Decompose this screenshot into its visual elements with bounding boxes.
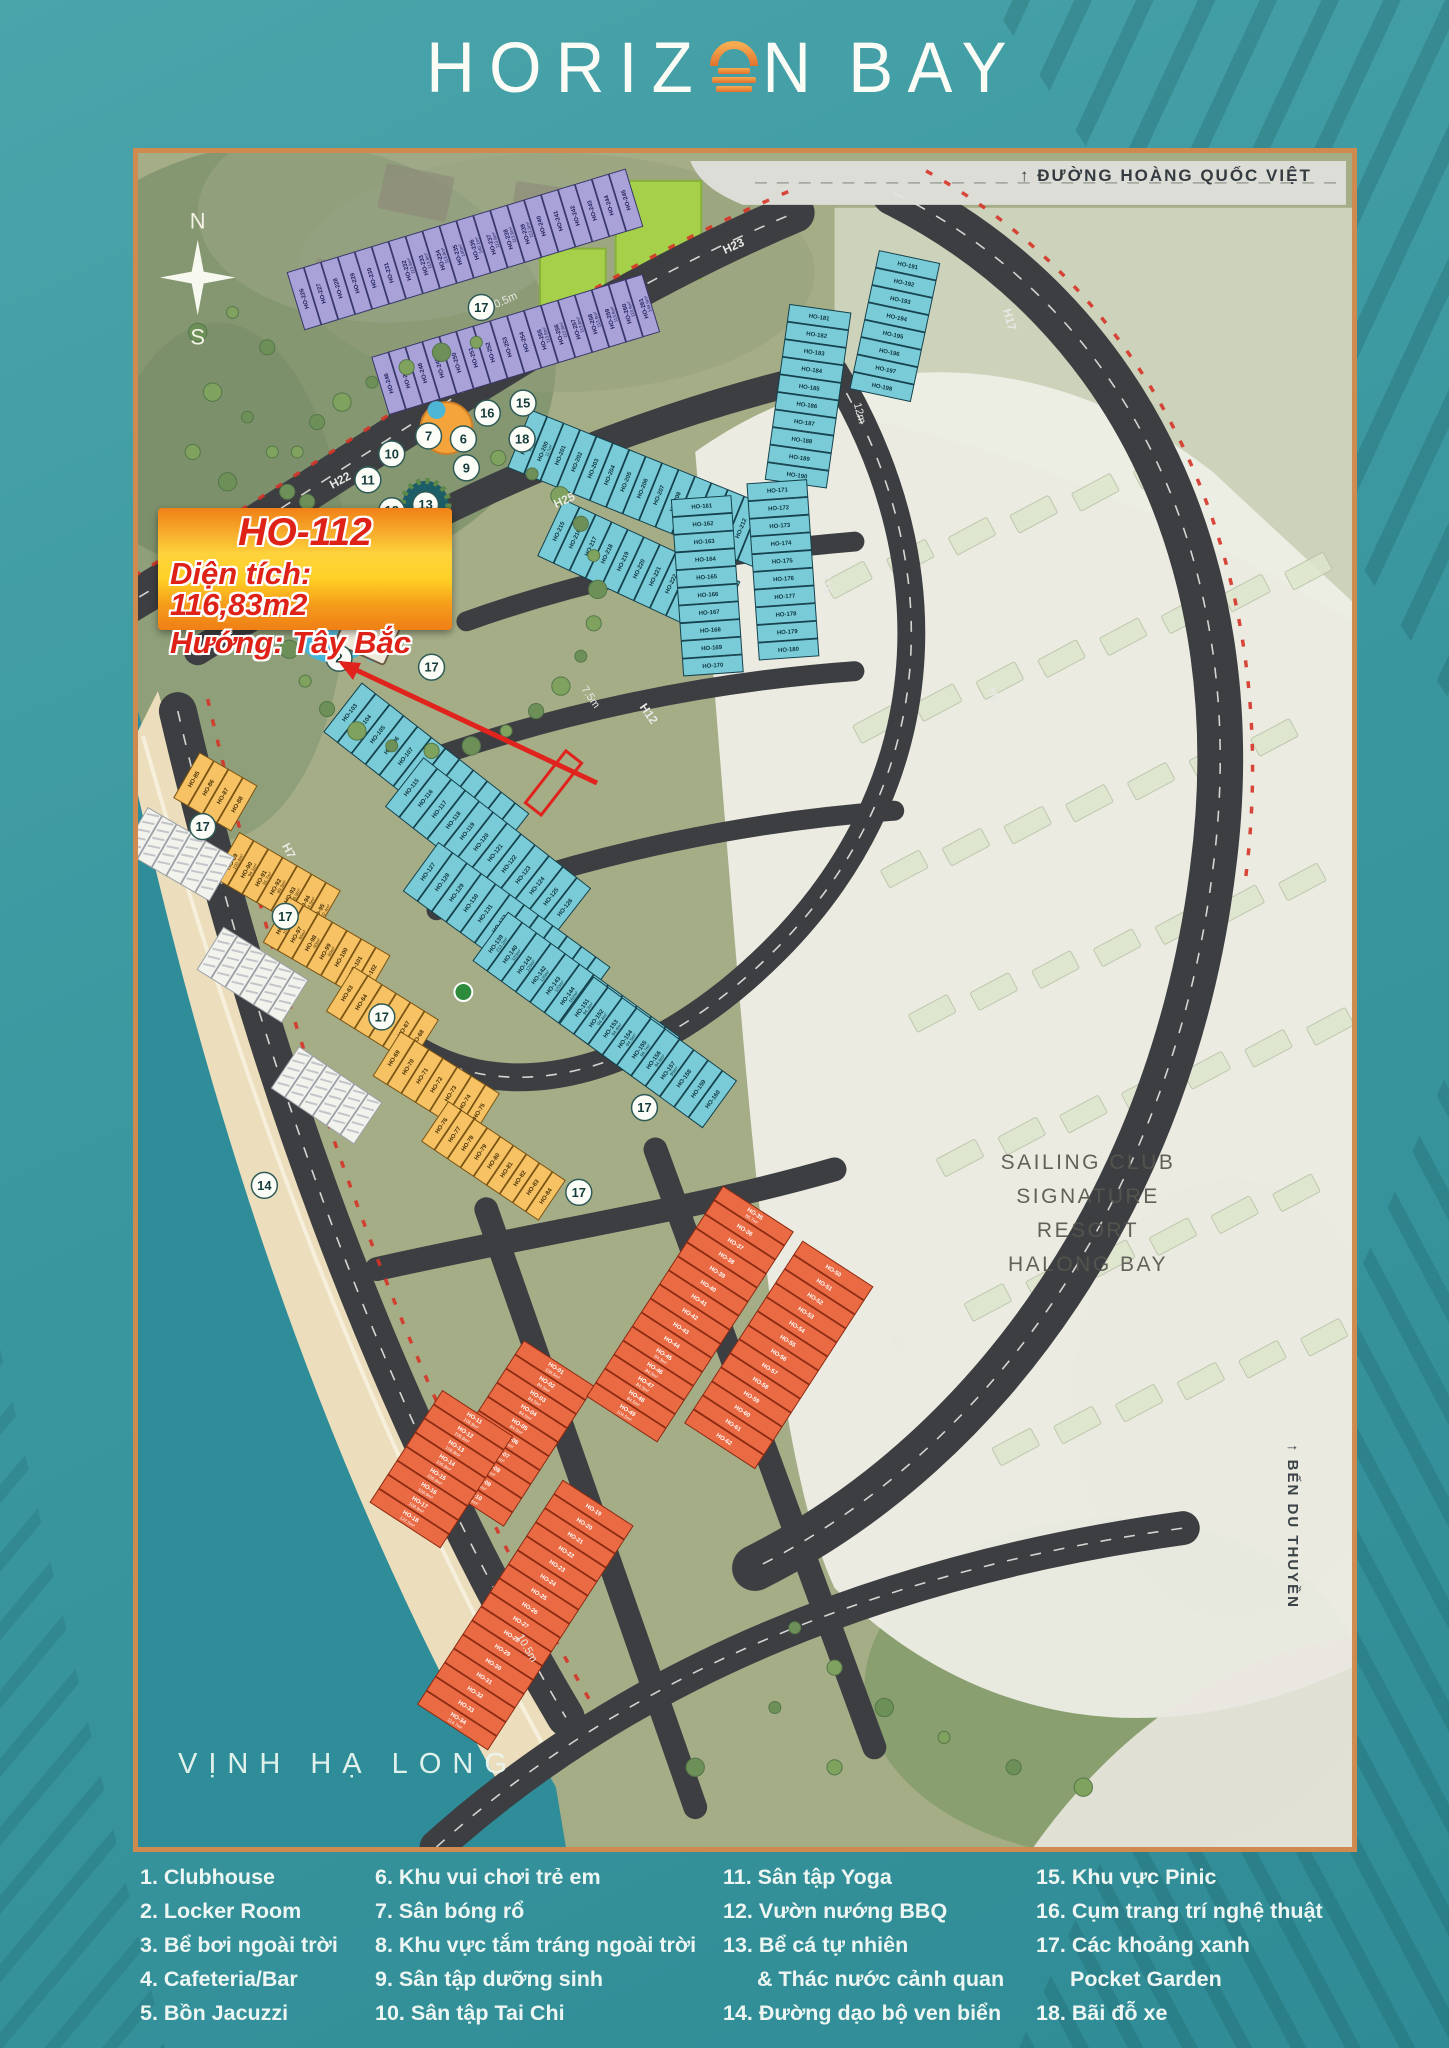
tree-icon bbox=[686, 1758, 704, 1776]
horizon-bay-masterplan-poster: { "logo": {"part1": "HORIZ", "part2": "N… bbox=[0, 0, 1449, 2048]
tree-icon bbox=[203, 383, 221, 401]
callout-direction: Hướng: Tây Bắc bbox=[158, 627, 452, 658]
amenity-marker-number: 17 bbox=[195, 819, 209, 834]
tree-icon bbox=[280, 484, 295, 499]
amenity-marker-number: 16 bbox=[480, 406, 494, 421]
tree-icon bbox=[424, 743, 439, 758]
legend-item: 11. Sân tập Yoga bbox=[723, 1860, 1004, 1894]
legend-column-4: 15. Khu vực Pinic16. Cụm trang trí nghệ … bbox=[1036, 1860, 1323, 2030]
tree-icon bbox=[299, 675, 311, 687]
amenity-marker-number: 14 bbox=[257, 1178, 272, 1193]
legend-item: 2. Locker Room bbox=[140, 1894, 338, 1928]
legend-item: 12. Vườn nướng BBQ bbox=[723, 1894, 1004, 1928]
legend-item: 5. Bồn Jacuzzi bbox=[140, 1996, 338, 2030]
logo-text-bay: BAY bbox=[849, 34, 1022, 102]
tree-icon bbox=[432, 343, 450, 361]
legend-item: 6. Khu vui chơi trẻ em bbox=[375, 1860, 696, 1894]
legend-column-1: 1. Clubhouse2. Locker Room3. Bể bơi ngoà… bbox=[140, 1860, 338, 2030]
legend-column-2: 6. Khu vui chơi trẻ em7. Sân bóng rổ8. K… bbox=[375, 1860, 696, 2030]
compass-north: N bbox=[190, 209, 206, 234]
callout-area: Diện tích: 116,83m2 bbox=[158, 558, 452, 620]
amenity-marker-number: 17 bbox=[637, 1100, 651, 1115]
tree-icon bbox=[588, 550, 600, 562]
amenity-marker-number: 10 bbox=[385, 446, 399, 461]
callout-lot-id: HO-112 bbox=[158, 513, 452, 552]
legend-item: 8. Khu vực tắm tráng ngoài trời bbox=[375, 1928, 696, 1962]
legend-item: 17. Các khoảng xanh bbox=[1036, 1928, 1323, 1962]
legend-item: 16. Cụm trang trí nghệ thuật bbox=[1036, 1894, 1323, 1928]
compass-south: S bbox=[190, 324, 205, 349]
lot-callout: HO-112 Diện tích: 116,83m2 Hướng: Tây Bắ… bbox=[158, 508, 452, 630]
amenity-marker-number: 17 bbox=[572, 1185, 586, 1200]
lot-block-teal_t5a: HO-171HO-172HO-173HO-174HO-175HO-176HO-1… bbox=[747, 480, 819, 660]
legend-item: 18. Bãi đỗ xe bbox=[1036, 1996, 1323, 2030]
tree-icon bbox=[470, 336, 482, 348]
lot-block-teal_t5b: HO-161HO-162HO-163HO-164HO-165HO-166HO-1… bbox=[671, 496, 743, 676]
masterplan-canvas: HO-226HO-227HO-228HO-229HO-230HO-231HO-2… bbox=[138, 153, 1352, 1847]
amenity-marker-number: 17 bbox=[474, 300, 488, 315]
tree-icon bbox=[386, 740, 398, 752]
tree-icon bbox=[573, 516, 588, 531]
amenity-marker-number: 15 bbox=[516, 396, 530, 411]
amenity-marker-number: 17 bbox=[278, 909, 292, 924]
tree-icon bbox=[1006, 1760, 1021, 1775]
amenity-marker-number: 18 bbox=[515, 431, 529, 446]
tree-icon bbox=[320, 701, 335, 716]
legend-item: 7. Sân bóng rổ bbox=[375, 1894, 696, 1928]
tree-icon bbox=[218, 473, 236, 491]
tree-icon bbox=[789, 1622, 801, 1634]
tree-icon bbox=[185, 444, 200, 459]
tree-icon bbox=[528, 703, 543, 718]
tree-icon bbox=[586, 616, 601, 631]
legend-item: 13. Bể cá tự nhiên bbox=[723, 1928, 1004, 1962]
tree-icon bbox=[575, 650, 587, 662]
tree-icon bbox=[769, 1702, 781, 1714]
tree-icon bbox=[500, 725, 512, 737]
tree-icon bbox=[348, 722, 366, 740]
tree-icon bbox=[589, 580, 607, 598]
legend-item: 4. Cafeteria/Bar bbox=[140, 1962, 338, 1996]
logo-text-mid: N bbox=[762, 34, 825, 102]
amenity-marker-number: 17 bbox=[375, 1009, 389, 1024]
tree-icon bbox=[399, 360, 414, 375]
logo-text-left: HORIZ bbox=[427, 34, 708, 102]
legend-item: 3. Bể bơi ngoài trời bbox=[140, 1928, 338, 1962]
tree-icon bbox=[291, 446, 303, 458]
legend-item: 15. Khu vực Pinic bbox=[1036, 1860, 1323, 1894]
sun-horizon-icon bbox=[707, 24, 761, 97]
legend-item: 14. Đường dạo bộ ven biển bbox=[723, 1996, 1004, 2030]
amenity-marker-number: 9 bbox=[463, 460, 470, 475]
tree-icon bbox=[462, 737, 480, 755]
legend-item: 1. Clubhouse bbox=[140, 1860, 338, 1894]
masterplan-map: HO-226HO-227HO-228HO-229HO-230HO-231HO-2… bbox=[133, 148, 1357, 1852]
legend-item-line2: Pocket Garden bbox=[1036, 1962, 1323, 1996]
tree-icon bbox=[827, 1660, 842, 1675]
amenity-marker-number: 11 bbox=[361, 472, 375, 487]
tree-icon bbox=[491, 450, 506, 465]
tree-icon bbox=[827, 1760, 842, 1775]
tree-icon bbox=[552, 677, 570, 695]
tree-icon bbox=[266, 446, 278, 458]
tree-icon bbox=[333, 393, 351, 411]
amenity-marker-number: 7 bbox=[425, 428, 432, 443]
legend-column-3: 11. Sân tập Yoga12. Vườn nướng BBQ13. Bể… bbox=[723, 1860, 1004, 2030]
amenity-marker-number: 6 bbox=[460, 431, 467, 446]
amenity-marker-number: 17 bbox=[424, 660, 438, 675]
legend: 1. Clubhouse2. Locker Room3. Bể bơi ngoà… bbox=[0, 1860, 1449, 2048]
tree-icon bbox=[938, 1731, 950, 1743]
legend-item-line2: & Thác nước cảnh quan bbox=[723, 1962, 1004, 1996]
tree-icon bbox=[227, 306, 239, 318]
horizon-bay-logo: HORIZ N BAY bbox=[0, 24, 1449, 99]
tree-icon bbox=[260, 340, 275, 355]
legend-item: 10. Sân tập Tai Chi bbox=[375, 1996, 696, 2030]
tree-icon bbox=[241, 411, 253, 423]
tree-icon bbox=[875, 1698, 893, 1716]
tree-icon bbox=[366, 376, 378, 388]
legend-item: 9. Sân tập dưỡng sinh bbox=[375, 1962, 696, 1996]
tree-icon bbox=[526, 468, 538, 480]
tree-icon bbox=[1074, 1778, 1092, 1796]
tree-icon bbox=[310, 414, 325, 429]
